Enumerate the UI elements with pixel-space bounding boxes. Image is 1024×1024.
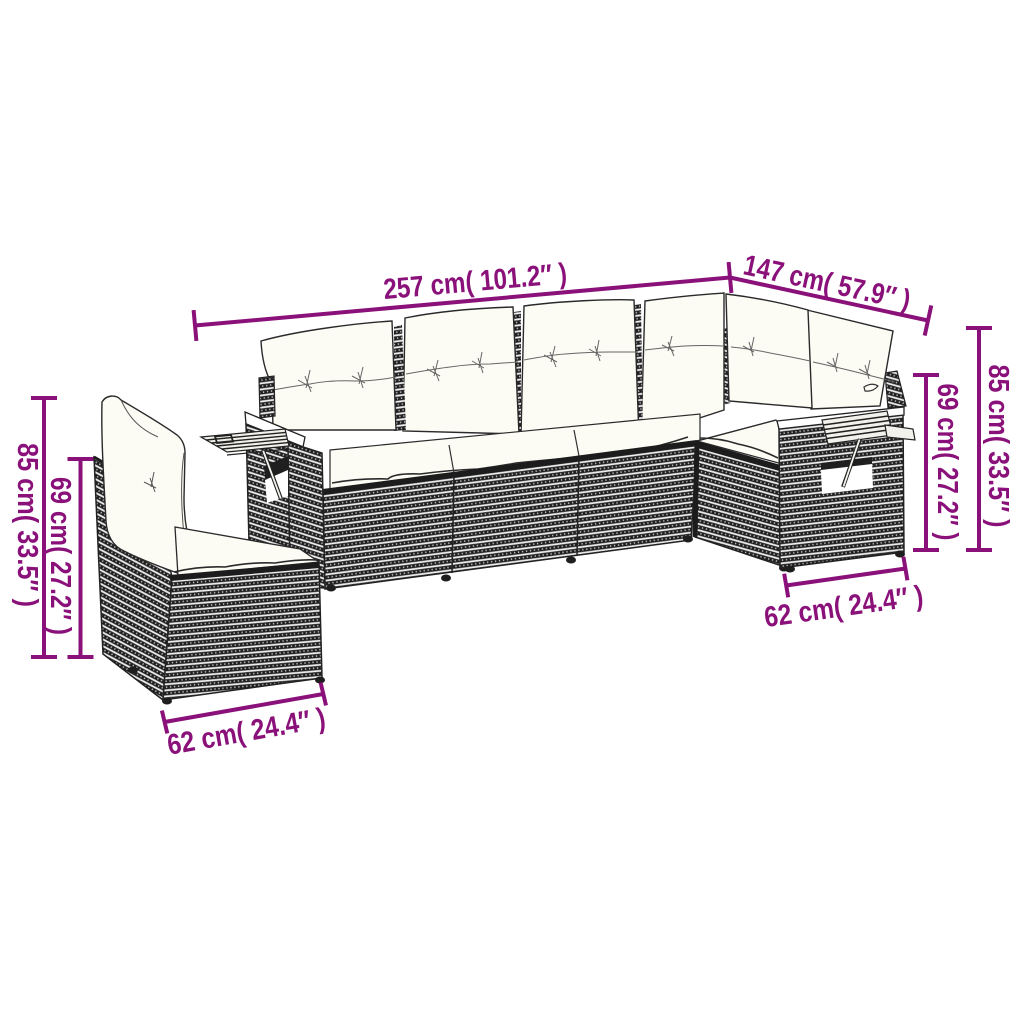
svg-text:85 cm( 33.5″ ): 85 cm( 33.5″ ) [982, 365, 1014, 528]
svg-text:69 cm( 27.2″ ): 69 cm( 27.2″ ) [44, 477, 76, 635]
svg-text:85 cm( 33.5″ ): 85 cm( 33.5″ ) [11, 443, 43, 607]
svg-text:69 cm( 27.2″ ): 69 cm( 27.2″ ) [931, 384, 963, 541]
